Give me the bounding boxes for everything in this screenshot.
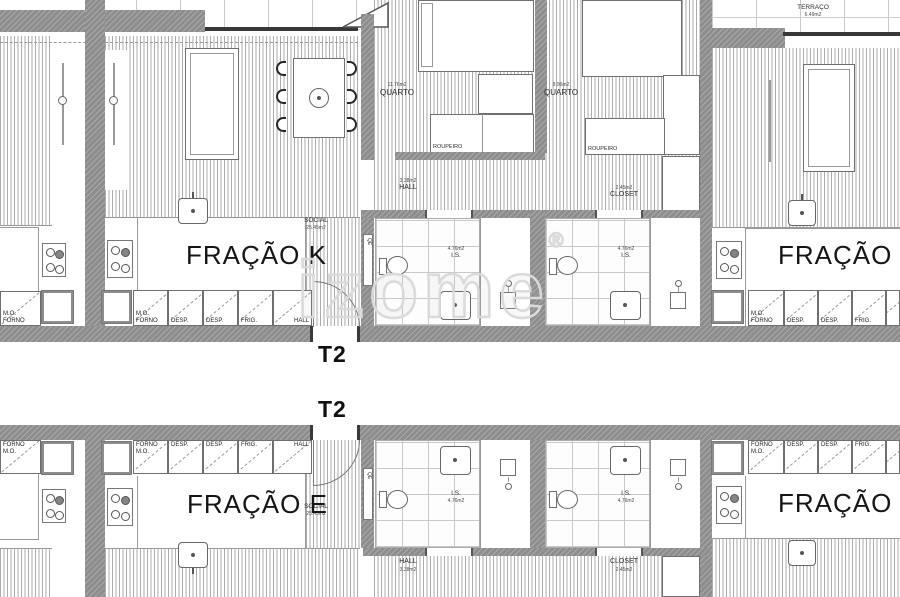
- counter-edge: [0, 539, 39, 540]
- toilet-tank: [379, 491, 387, 508]
- door-opening: [595, 548, 643, 556]
- door-handle: [109, 96, 118, 105]
- room-label-closet: 2.45m2 CLOSET: [602, 185, 646, 200]
- closet-cabinet: [662, 156, 700, 212]
- watermark: izome®: [297, 244, 568, 336]
- wardrobe-strip-k: [105, 50, 127, 190]
- wall: [85, 0, 105, 326]
- room-label-wc: I.S. 4.76m2: [610, 490, 642, 504]
- wall: [700, 425, 712, 597]
- wall: [530, 440, 545, 552]
- window: [42, 291, 73, 323]
- sofa-seat: [808, 69, 850, 167]
- cooktop: [107, 240, 133, 278]
- cabinet-cell: DESP.: [818, 440, 852, 474]
- counter-edge: [745, 228, 900, 229]
- cooktop: [42, 489, 66, 523]
- room-label-social: SOCIAL 25.45m2: [295, 217, 337, 231]
- unit-label-e: FRAÇÃO E: [187, 489, 328, 520]
- bed: [582, 0, 682, 77]
- dining-chair: [276, 89, 286, 104]
- room-label-wc: I.S. 4.76m2: [440, 490, 472, 504]
- cabinet-cell: DESP.: [168, 440, 203, 474]
- room-label-hall: HALL 3.38m2: [388, 558, 428, 573]
- counter-edge: [137, 476, 138, 548]
- room-label-hall: 3.38m2 HALL: [388, 178, 428, 193]
- counter-edge: [137, 218, 138, 292]
- door-opening: [425, 210, 473, 218]
- cabinet-cell: FRIG.: [852, 290, 886, 326]
- sink-tap: [801, 194, 803, 200]
- shower-hose: [508, 477, 509, 482]
- sliding-door-line: [205, 27, 358, 31]
- sink-tap: [192, 568, 194, 574]
- wardrobe-strip-left-unit: [52, 548, 76, 597]
- wardrobe-line: [769, 80, 771, 162]
- floor-hatch-left-unit: [0, 36, 52, 226]
- sink-tap: [192, 192, 194, 198]
- counter-edge: [0, 227, 39, 228]
- shower-divider: [650, 218, 651, 326]
- wall: [361, 14, 374, 160]
- cabinet-cell: M.O.FORNO: [133, 290, 168, 326]
- closet-cabinet: [662, 556, 700, 597]
- sliding-door-line: [783, 32, 900, 36]
- window: [102, 291, 131, 323]
- wall: [535, 0, 547, 153]
- sofa-seat: [190, 53, 234, 155]
- electrical-panel-label: QE: [366, 472, 372, 479]
- shower-divider: [650, 440, 651, 548]
- window: [712, 442, 743, 474]
- wardrobe-strip-left-unit: [52, 36, 76, 226]
- sink-drain: [800, 211, 804, 215]
- shower-fixture: [670, 292, 686, 309]
- door-opening: [425, 548, 473, 556]
- unit-label-l: FRAÇÃO L: [778, 240, 900, 271]
- cabinet-cell: DESP.: [168, 290, 203, 326]
- sink-drain: [191, 209, 195, 213]
- dining-chair: [276, 117, 286, 132]
- wardrobe-divider: [482, 114, 483, 154]
- side-cabinet: [663, 75, 700, 155]
- window: [102, 442, 131, 474]
- sink-drain: [623, 303, 627, 307]
- entry-door-gap: [310, 425, 360, 440]
- cabinet-cell: FRIG.: [238, 440, 273, 474]
- wall: [700, 28, 785, 48]
- shower-fixture: [500, 459, 516, 476]
- wall: [395, 152, 545, 160]
- toilet-tank: [549, 491, 557, 508]
- floor-hatch-left-unit: [0, 548, 52, 597]
- cabinet-cell: DESP.: [784, 440, 818, 474]
- cabinet-cell: DESP.: [203, 440, 238, 474]
- sink-drain: [623, 458, 627, 462]
- wall: [700, 0, 712, 326]
- shower-head: [675, 280, 682, 287]
- bed-pillow: [421, 3, 433, 67]
- sink-drain: [800, 551, 804, 555]
- side-table: [478, 74, 533, 114]
- bed: [418, 0, 534, 72]
- wall: [0, 425, 900, 440]
- counter-edge: [745, 476, 746, 538]
- shower-head: [675, 483, 682, 490]
- shower-hose: [678, 477, 679, 482]
- room-label-terrace: TERRAÇO 6.49m2: [786, 4, 840, 18]
- cooktop: [42, 243, 66, 277]
- terrace-dash-left: [0, 42, 86, 43]
- cabinet-cell: [886, 290, 900, 326]
- window: [42, 442, 73, 474]
- door-handle: [58, 96, 67, 105]
- cabinet-cell: DESP.: [784, 290, 818, 326]
- cooktop: [107, 488, 133, 526]
- cabinet-cell: HALL: [273, 440, 312, 474]
- cabinet-cell: DESP.: [203, 290, 238, 326]
- cabinet-cell: M.O.FORNO: [748, 290, 784, 326]
- room-label-wc: 4.76m2 I.S.: [610, 246, 642, 260]
- shower-head: [505, 483, 512, 490]
- shower-divider: [480, 440, 481, 548]
- cooktop: [716, 486, 742, 524]
- floor-hatch-e-living: [105, 548, 360, 597]
- counter-edge: [38, 474, 39, 539]
- cabinet-cell: M.O.FORNO: [0, 291, 41, 326]
- type-label-t2-top: T2: [318, 341, 347, 368]
- room-label-closet: CLOSET 2.45m2: [602, 558, 646, 573]
- room-label-quarto-1: 11.76m2 QUARTO: [374, 82, 420, 98]
- cabinet-cell: [886, 440, 900, 474]
- floor-plan: ROUPEIRO ROUPEIRO: [0, 0, 900, 597]
- toilet-bowl: [387, 490, 408, 509]
- terrace-dash-k: [105, 42, 358, 43]
- cooktop: [716, 241, 742, 279]
- roupeiro-label: ROUPEIRO: [588, 146, 622, 153]
- counter-edge: [745, 538, 900, 539]
- table-center-dot: [317, 96, 321, 100]
- window: [712, 291, 743, 323]
- cabinet-cell: DESP.: [818, 290, 852, 326]
- cabinet-cell: FORNOM.O.: [748, 440, 784, 474]
- cabinet-cell: FRIG.: [852, 440, 886, 474]
- shower-fixture: [670, 459, 686, 476]
- room-label-quarto-2: 8.96m2 QUARTO: [540, 82, 582, 98]
- cabinet-cell: FORNOM.O.: [0, 440, 41, 474]
- roupeiro-label: ROUPEIRO: [433, 144, 467, 151]
- unit-label-f: FRAÇÃO F: [778, 488, 900, 519]
- sink-drain: [191, 553, 195, 557]
- toilet-bowl: [557, 490, 578, 509]
- cabinet-cell: FRIG.: [238, 290, 273, 326]
- type-label-t2-bottom: T2: [318, 396, 347, 423]
- wall: [363, 548, 710, 556]
- door-opening: [595, 210, 643, 218]
- cabinet-cell: FORNOM.O.: [133, 440, 168, 474]
- counter-edge: [745, 228, 746, 326]
- dining-chair: [276, 61, 286, 76]
- sink-drain: [453, 458, 457, 462]
